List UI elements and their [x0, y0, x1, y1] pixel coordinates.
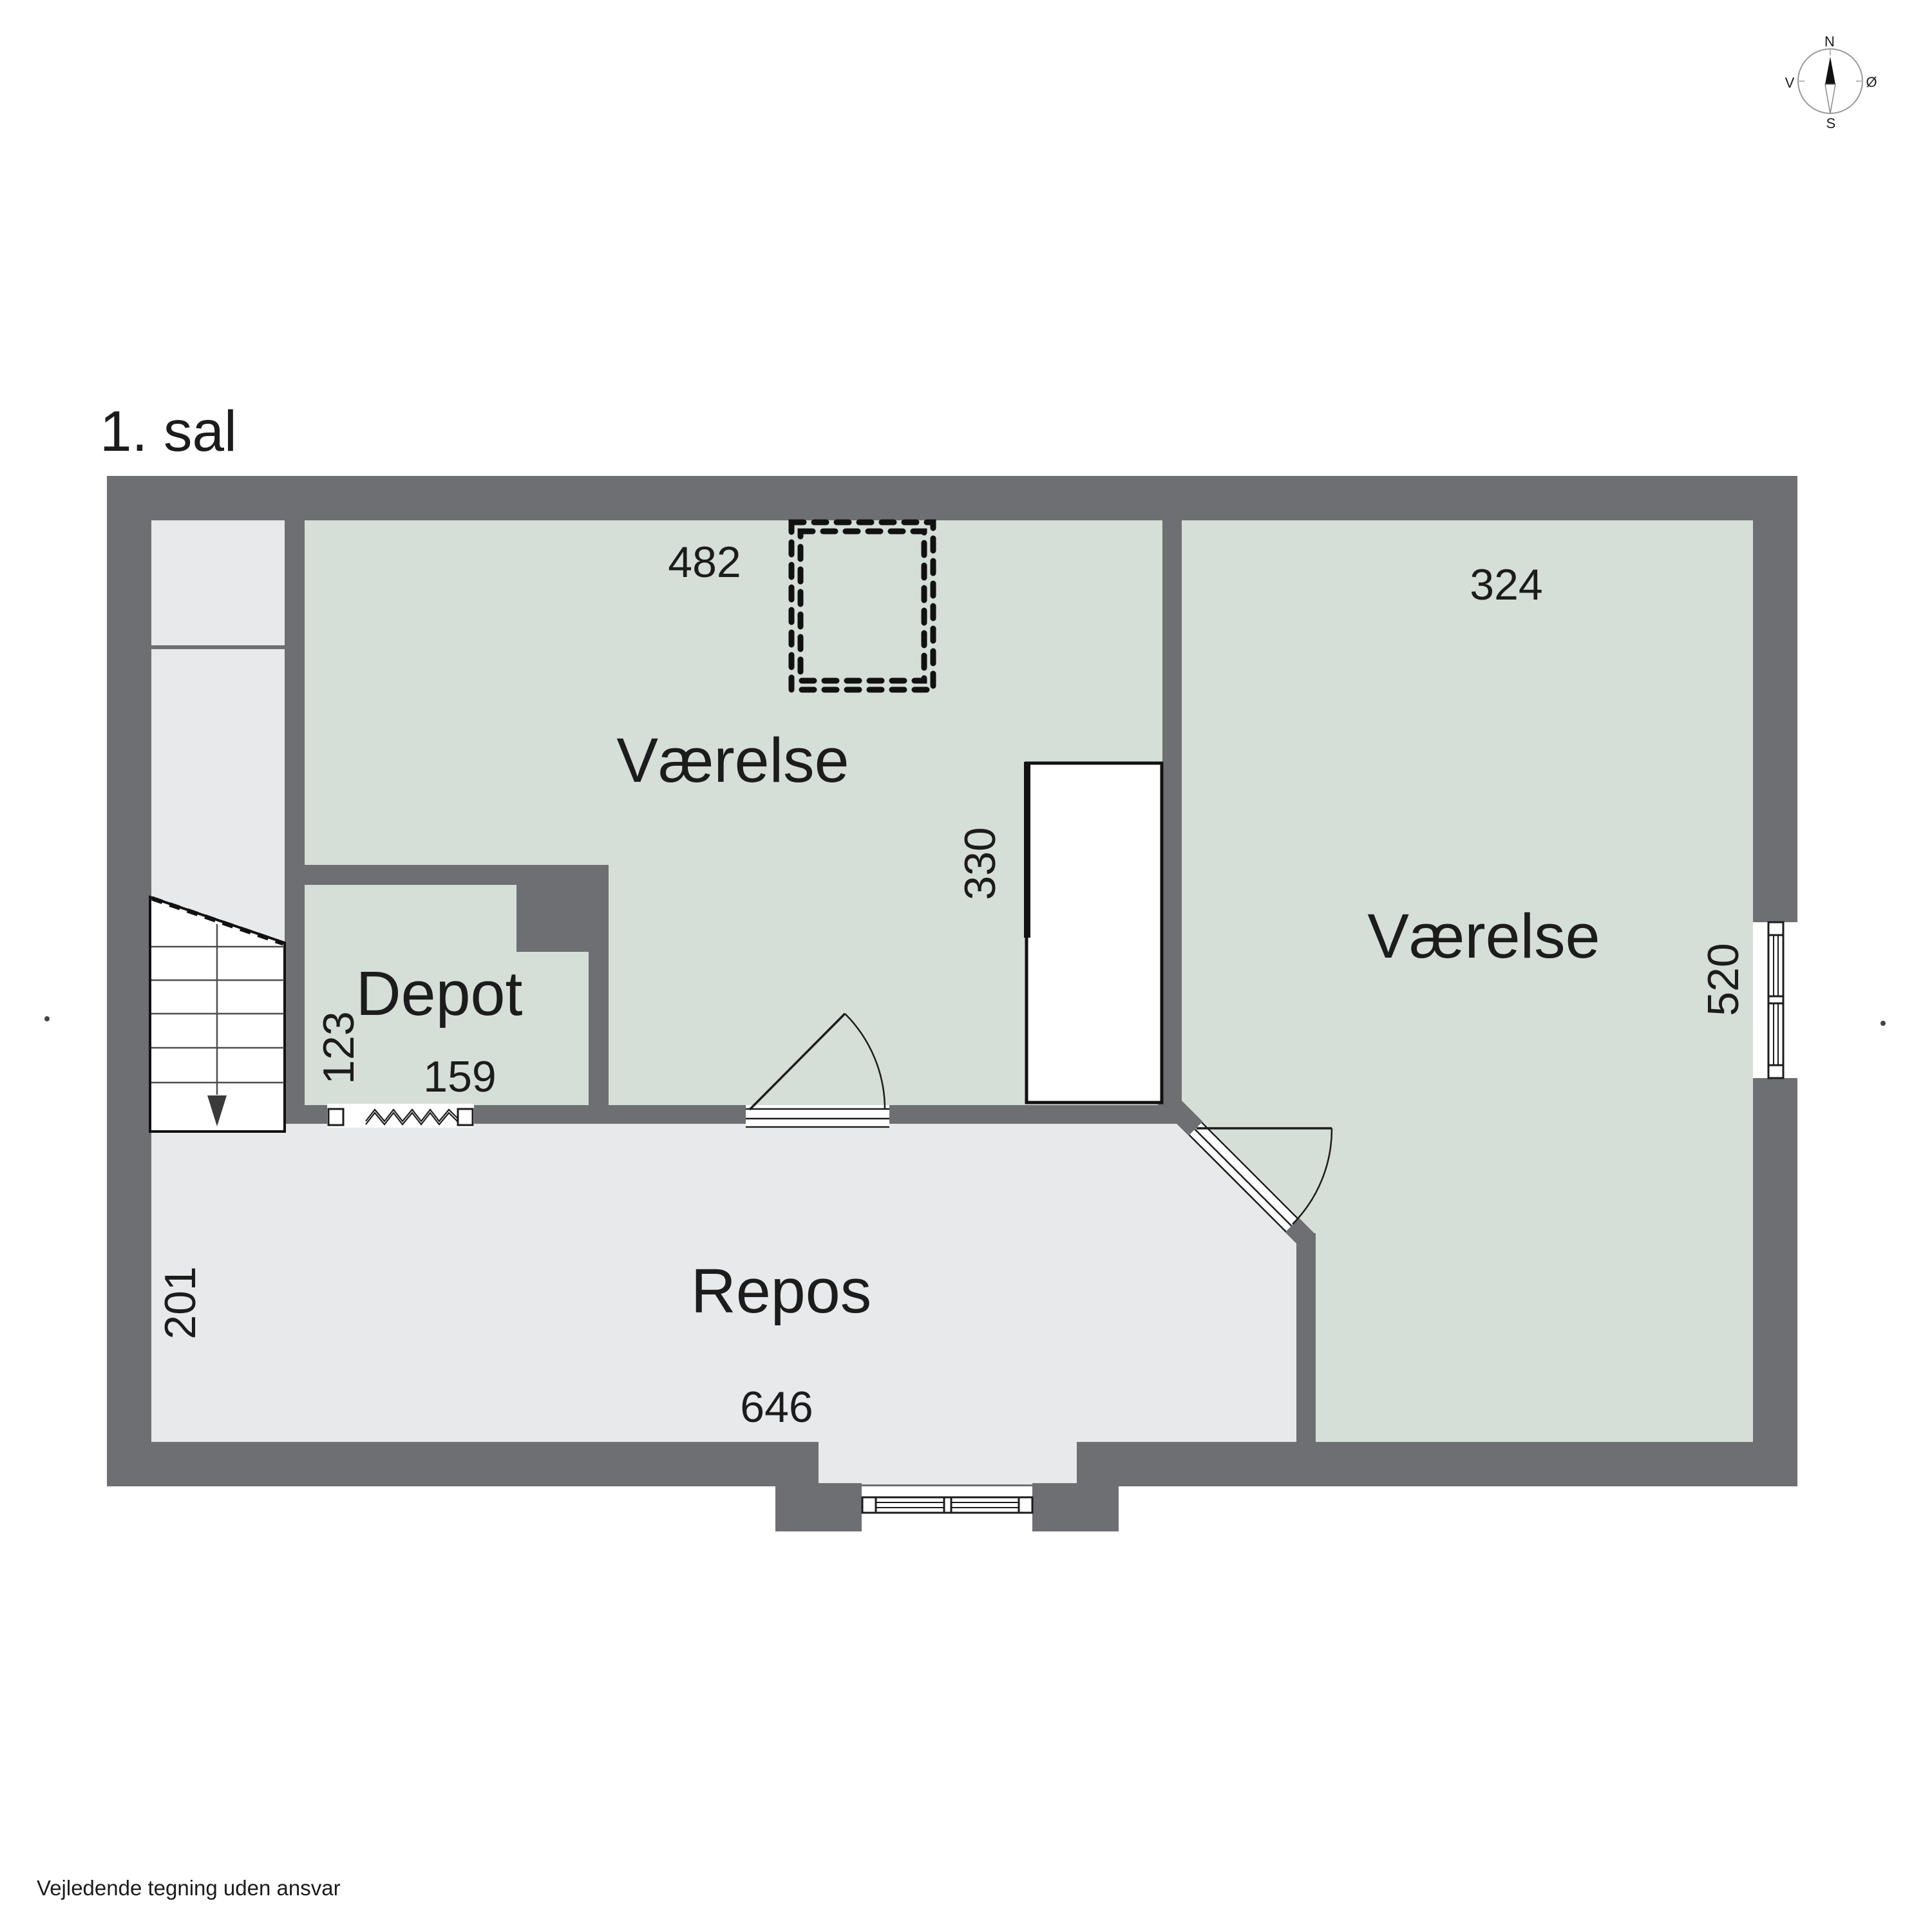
svg-text:123: 123 — [314, 1011, 363, 1084]
svg-text:1. sal: 1. sal — [100, 399, 237, 463]
svg-text:201: 201 — [156, 1266, 205, 1339]
svg-text:330: 330 — [956, 827, 1005, 900]
svg-text:S: S — [1826, 115, 1836, 131]
svg-text:V: V — [1785, 75, 1795, 91]
svg-text:482: 482 — [668, 538, 741, 587]
svg-text:520: 520 — [1699, 943, 1748, 1016]
svg-text:Ø: Ø — [1866, 74, 1877, 90]
svg-text:646: 646 — [740, 1383, 813, 1432]
svg-text:159: 159 — [423, 1052, 496, 1101]
svg-text:Værelse: Værelse — [616, 725, 849, 795]
svg-text:Vejledende tegning uden ansvar: Vejledende tegning uden ansvar — [37, 1876, 341, 1900]
svg-text:Repos: Repos — [691, 1256, 871, 1326]
svg-text:N: N — [1824, 33, 1835, 50]
svg-text:324: 324 — [1470, 560, 1542, 609]
svg-text:Værelse: Værelse — [1367, 901, 1600, 971]
svg-text:Depot: Depot — [356, 958, 523, 1028]
